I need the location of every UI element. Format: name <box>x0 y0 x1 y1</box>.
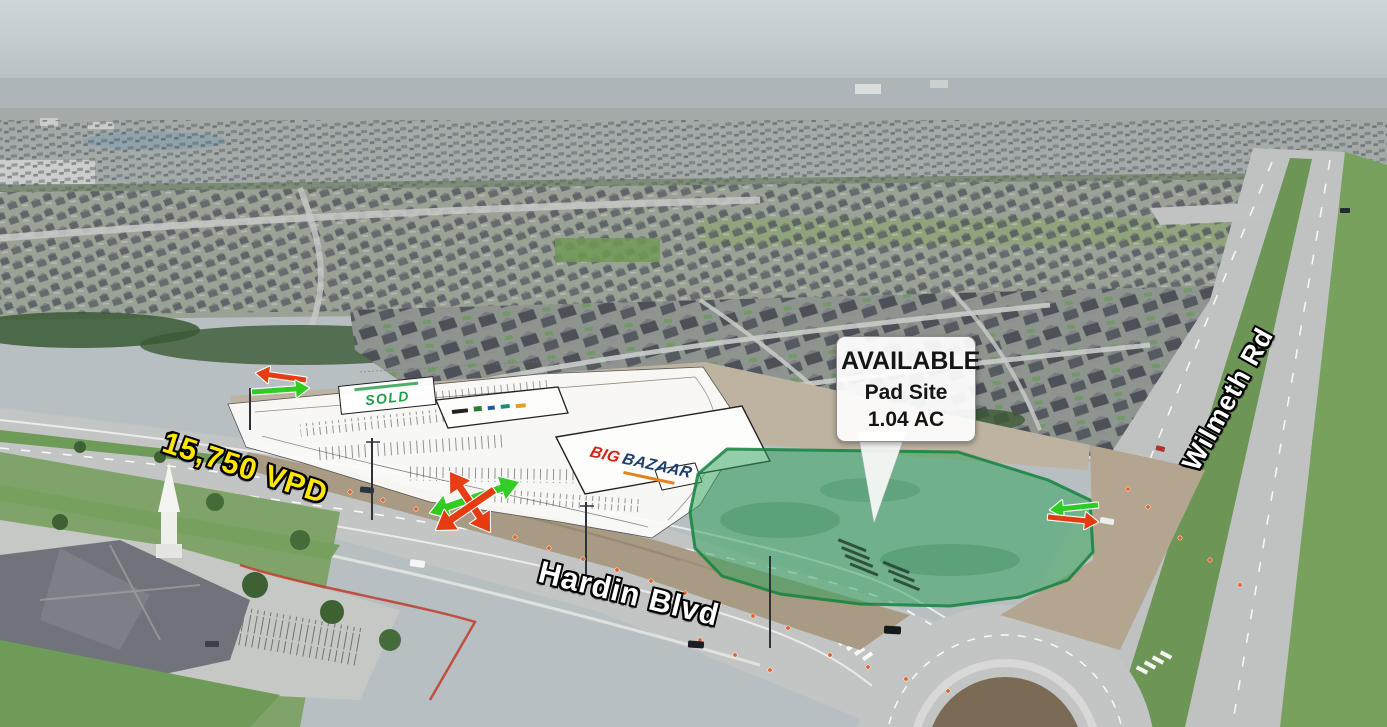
left-access-in-green-arrow <box>252 380 309 397</box>
aerial-site-photo: SOLD BIGBAZAAR 15,750 VPD Hardin Blvd Wi… <box>0 0 1387 727</box>
callout-available: AVAILABLE <box>841 347 971 376</box>
right-access-out-red-arrow <box>1048 512 1098 529</box>
callout-pad-site: Pad Site <box>841 381 971 405</box>
available-pad-callout: AVAILABLE Pad Site 1.04 AC <box>836 336 976 442</box>
left-access-out-red-arrow <box>256 366 306 383</box>
callout-acreage: 1.04 AC <box>841 408 971 432</box>
